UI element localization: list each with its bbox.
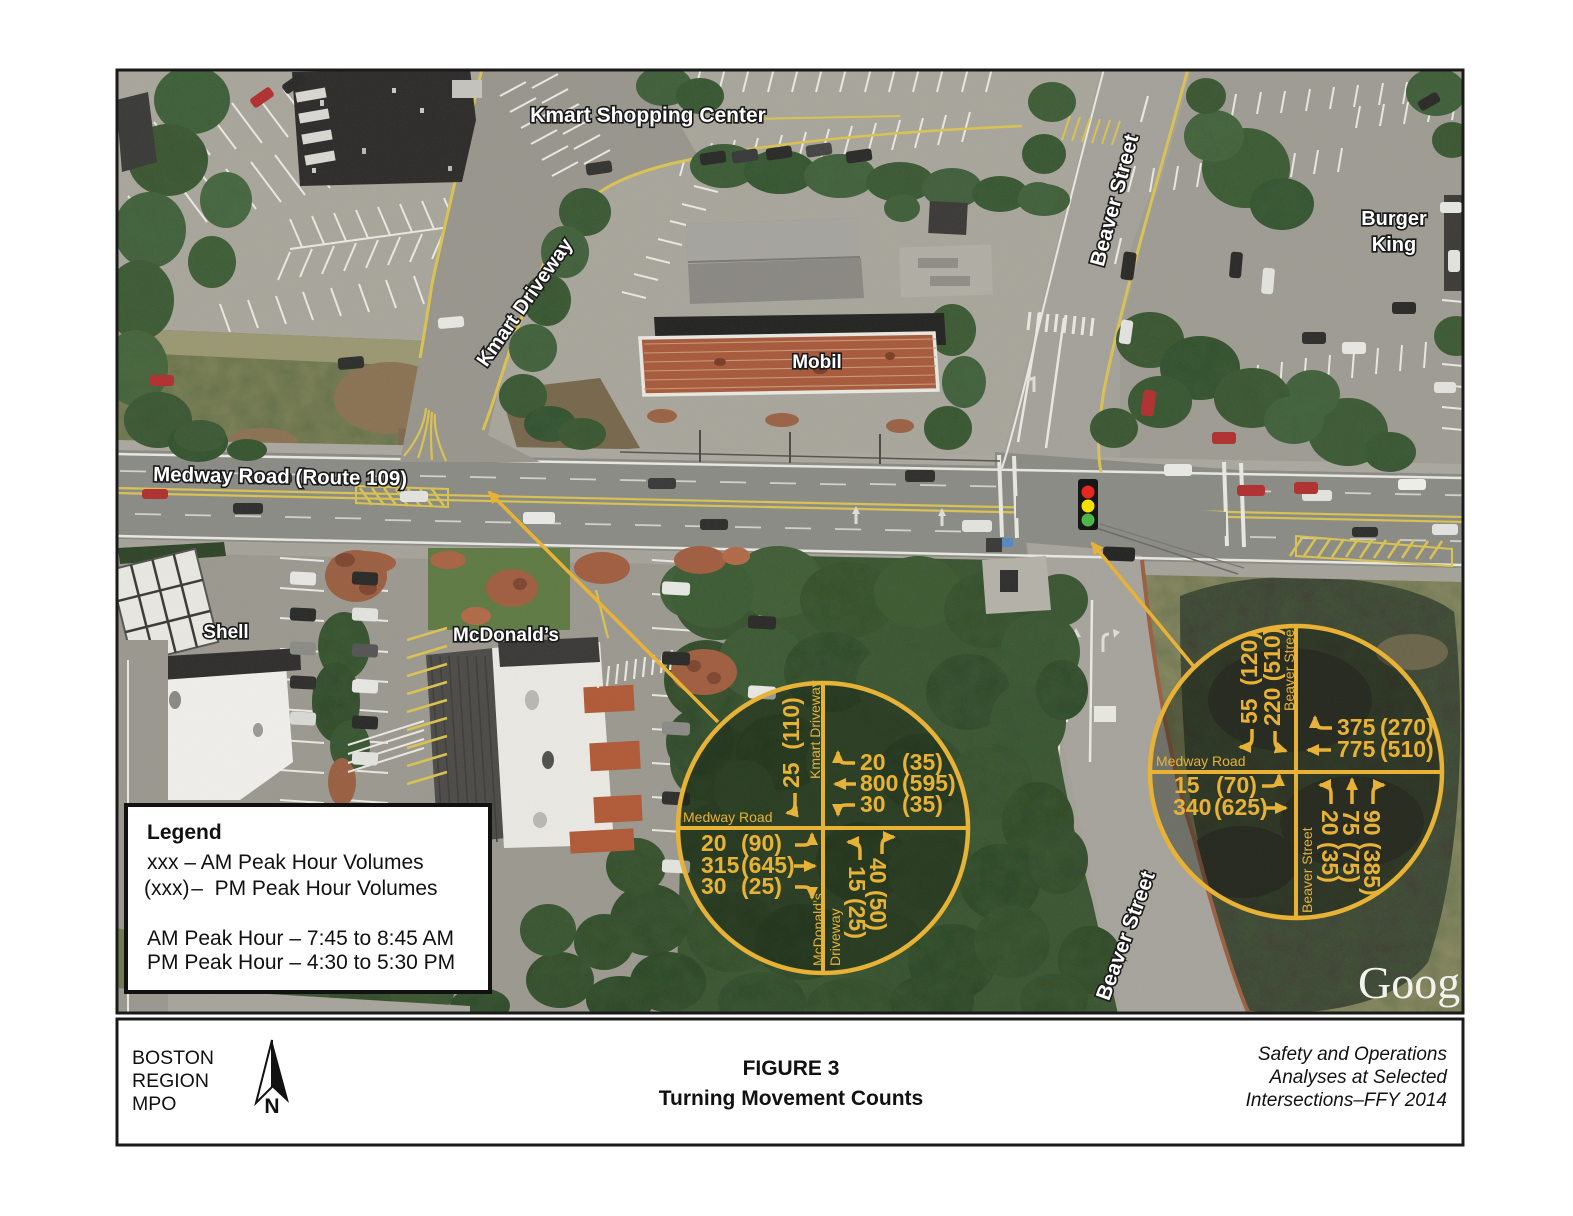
svg-text:Beaver Street: Beaver Street (1299, 827, 1315, 913)
svg-text:Burger: Burger (1361, 208, 1427, 230)
svg-text:90 (385): 90 (385) (1359, 810, 1385, 896)
svg-text:(25): (25) (741, 873, 782, 899)
svg-text:Driveway: Driveway (827, 908, 843, 966)
svg-text:xxx – AM Peak Hour Volumes: xxx – AM Peak Hour Volumes (147, 851, 424, 874)
svg-text:(625): (625) (1214, 794, 1268, 820)
svg-text:Legend: Legend (147, 821, 222, 844)
svg-text:Medway Road (Route 109): Medway Road (Route 109) (153, 463, 407, 490)
svg-text:McDonald’s: McDonald’s (453, 625, 559, 646)
svg-text:Medway Road: Medway Road (683, 809, 773, 825)
svg-text:AM Peak Hour – 7:45 to 8:45 AM: AM Peak Hour – 7:45 to 8:45 AM (147, 927, 454, 950)
svg-text:N: N (264, 1095, 279, 1118)
svg-text:Beaver Street: Beaver Street (1281, 625, 1297, 711)
svg-text:775: 775 (1337, 736, 1376, 762)
svg-text:Goog: Goog (1358, 957, 1460, 1008)
svg-text:Kmart Driveway: Kmart Driveway (807, 680, 823, 779)
svg-text:MPO: MPO (132, 1093, 176, 1115)
svg-text:Turning Movement Counts: Turning Movement Counts (659, 1087, 923, 1110)
svg-text:30: 30 (860, 791, 886, 817)
svg-text:King: King (1372, 234, 1416, 256)
svg-text:Kmart Shopping Center: Kmart Shopping Center (530, 104, 766, 127)
svg-text:Shell: Shell (203, 622, 248, 643)
svg-text:Intersections–FFY 2014: Intersections–FFY 2014 (1246, 1090, 1447, 1111)
svg-text:30: 30 (701, 873, 727, 899)
svg-text:Analyses at Selected: Analyses at Selected (1269, 1067, 1449, 1088)
svg-text:Safety and Operations: Safety and Operations (1258, 1044, 1448, 1065)
svg-text:(35): (35) (902, 791, 943, 817)
svg-text:(xxx) – PM Peak Hour Volumes: (xxx) – PM Peak Hour Volumes (144, 877, 438, 900)
svg-text:340: 340 (1173, 794, 1211, 820)
svg-text:Medway Road: Medway Road (1156, 753, 1246, 769)
svg-text:BOSTON: BOSTON (132, 1047, 214, 1069)
svg-text:15 (25): 15 (25) (844, 866, 870, 939)
svg-text:(510): (510) (1380, 736, 1434, 762)
svg-text:McDonald’s: McDonald’s (810, 893, 826, 966)
svg-text:REGION: REGION (132, 1070, 209, 1092)
svg-text:PM Peak Hour – 4:30 to 5:30 PM: PM Peak Hour – 4:30 to 5:30 PM (147, 951, 455, 974)
svg-text:FIGURE 3: FIGURE 3 (743, 1057, 840, 1080)
svg-text:Mobil: Mobil (792, 352, 842, 373)
svg-text:25 (110): 25 (110) (778, 697, 804, 788)
